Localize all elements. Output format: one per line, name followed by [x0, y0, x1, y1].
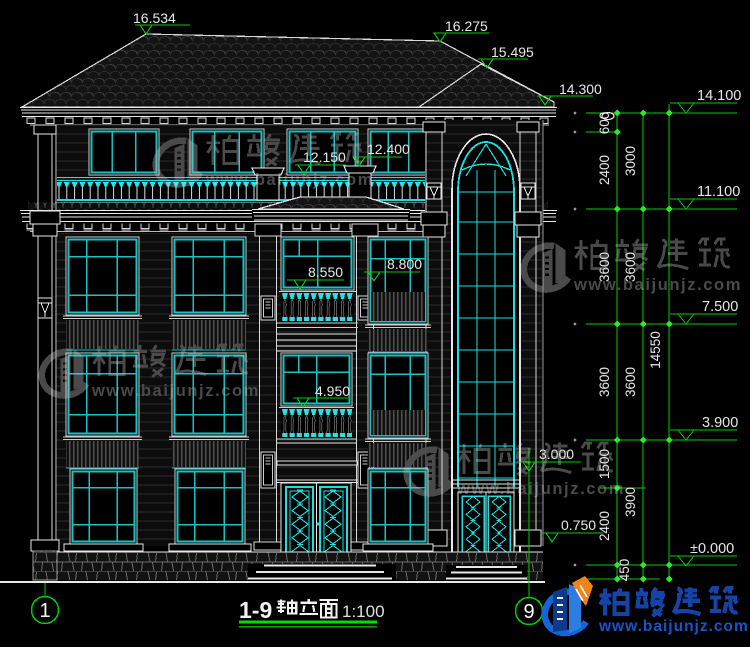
svg-text:0.750: 0.750: [561, 517, 596, 533]
svg-text:11.100: 11.100: [697, 184, 740, 200]
svg-text:3.000: 3.000: [539, 446, 574, 462]
svg-text:9: 9: [523, 601, 534, 623]
svg-text:www.baijunjz.com: www.baijunjz.com: [456, 480, 625, 498]
svg-text:www.baijunjz.com: www.baijunjz.com: [598, 618, 749, 635]
svg-text:1: 1: [39, 600, 50, 622]
svg-text:3000: 3000: [623, 146, 638, 176]
svg-text:3600: 3600: [597, 367, 612, 397]
svg-text:14.100: 14.100: [697, 88, 741, 104]
svg-text:2400: 2400: [597, 155, 612, 185]
svg-text:1:100: 1:100: [342, 602, 385, 621]
svg-text:8.550: 8.550: [308, 264, 343, 280]
svg-text:±0.000: ±0.000: [690, 541, 734, 557]
svg-text:www.baijunjz.com: www.baijunjz.com: [205, 171, 374, 189]
svg-text:15.495: 15.495: [491, 44, 534, 60]
svg-text:1-9: 1-9: [239, 597, 272, 623]
svg-text:450: 450: [617, 559, 632, 582]
svg-text:4.950: 4.950: [315, 383, 350, 399]
svg-text:16.275: 16.275: [445, 18, 488, 34]
svg-text:www.baijunjz.com: www.baijunjz.com: [573, 276, 742, 294]
svg-text:12.400: 12.400: [367, 141, 410, 157]
svg-text:14550: 14550: [648, 331, 663, 369]
svg-text:www.baijunjz.com: www.baijunjz.com: [91, 382, 260, 400]
svg-text:3.900: 3.900: [702, 415, 738, 431]
svg-text:14.300: 14.300: [559, 81, 602, 97]
svg-text:600: 600: [597, 112, 612, 135]
svg-text:2400: 2400: [597, 511, 612, 541]
svg-text:3600: 3600: [623, 367, 638, 397]
svg-text:16.534: 16.534: [133, 10, 176, 26]
svg-text:8.800: 8.800: [387, 256, 422, 272]
svg-text:7.500: 7.500: [702, 299, 738, 315]
svg-text:3900: 3900: [623, 487, 638, 517]
